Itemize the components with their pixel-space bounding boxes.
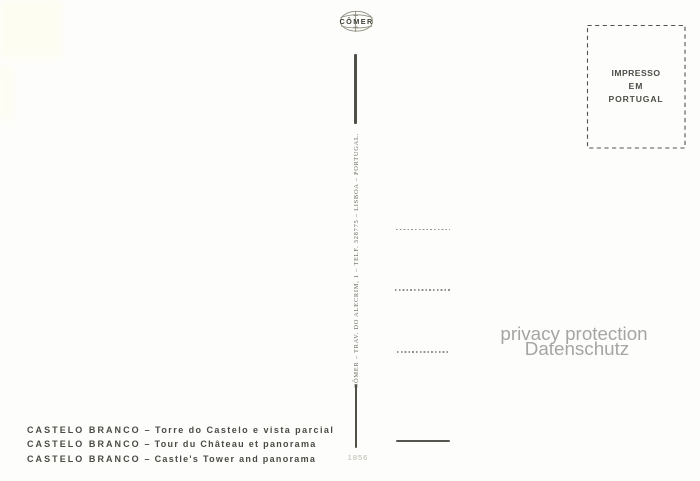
svg-text:CÔMER: CÔMER xyxy=(340,17,374,26)
